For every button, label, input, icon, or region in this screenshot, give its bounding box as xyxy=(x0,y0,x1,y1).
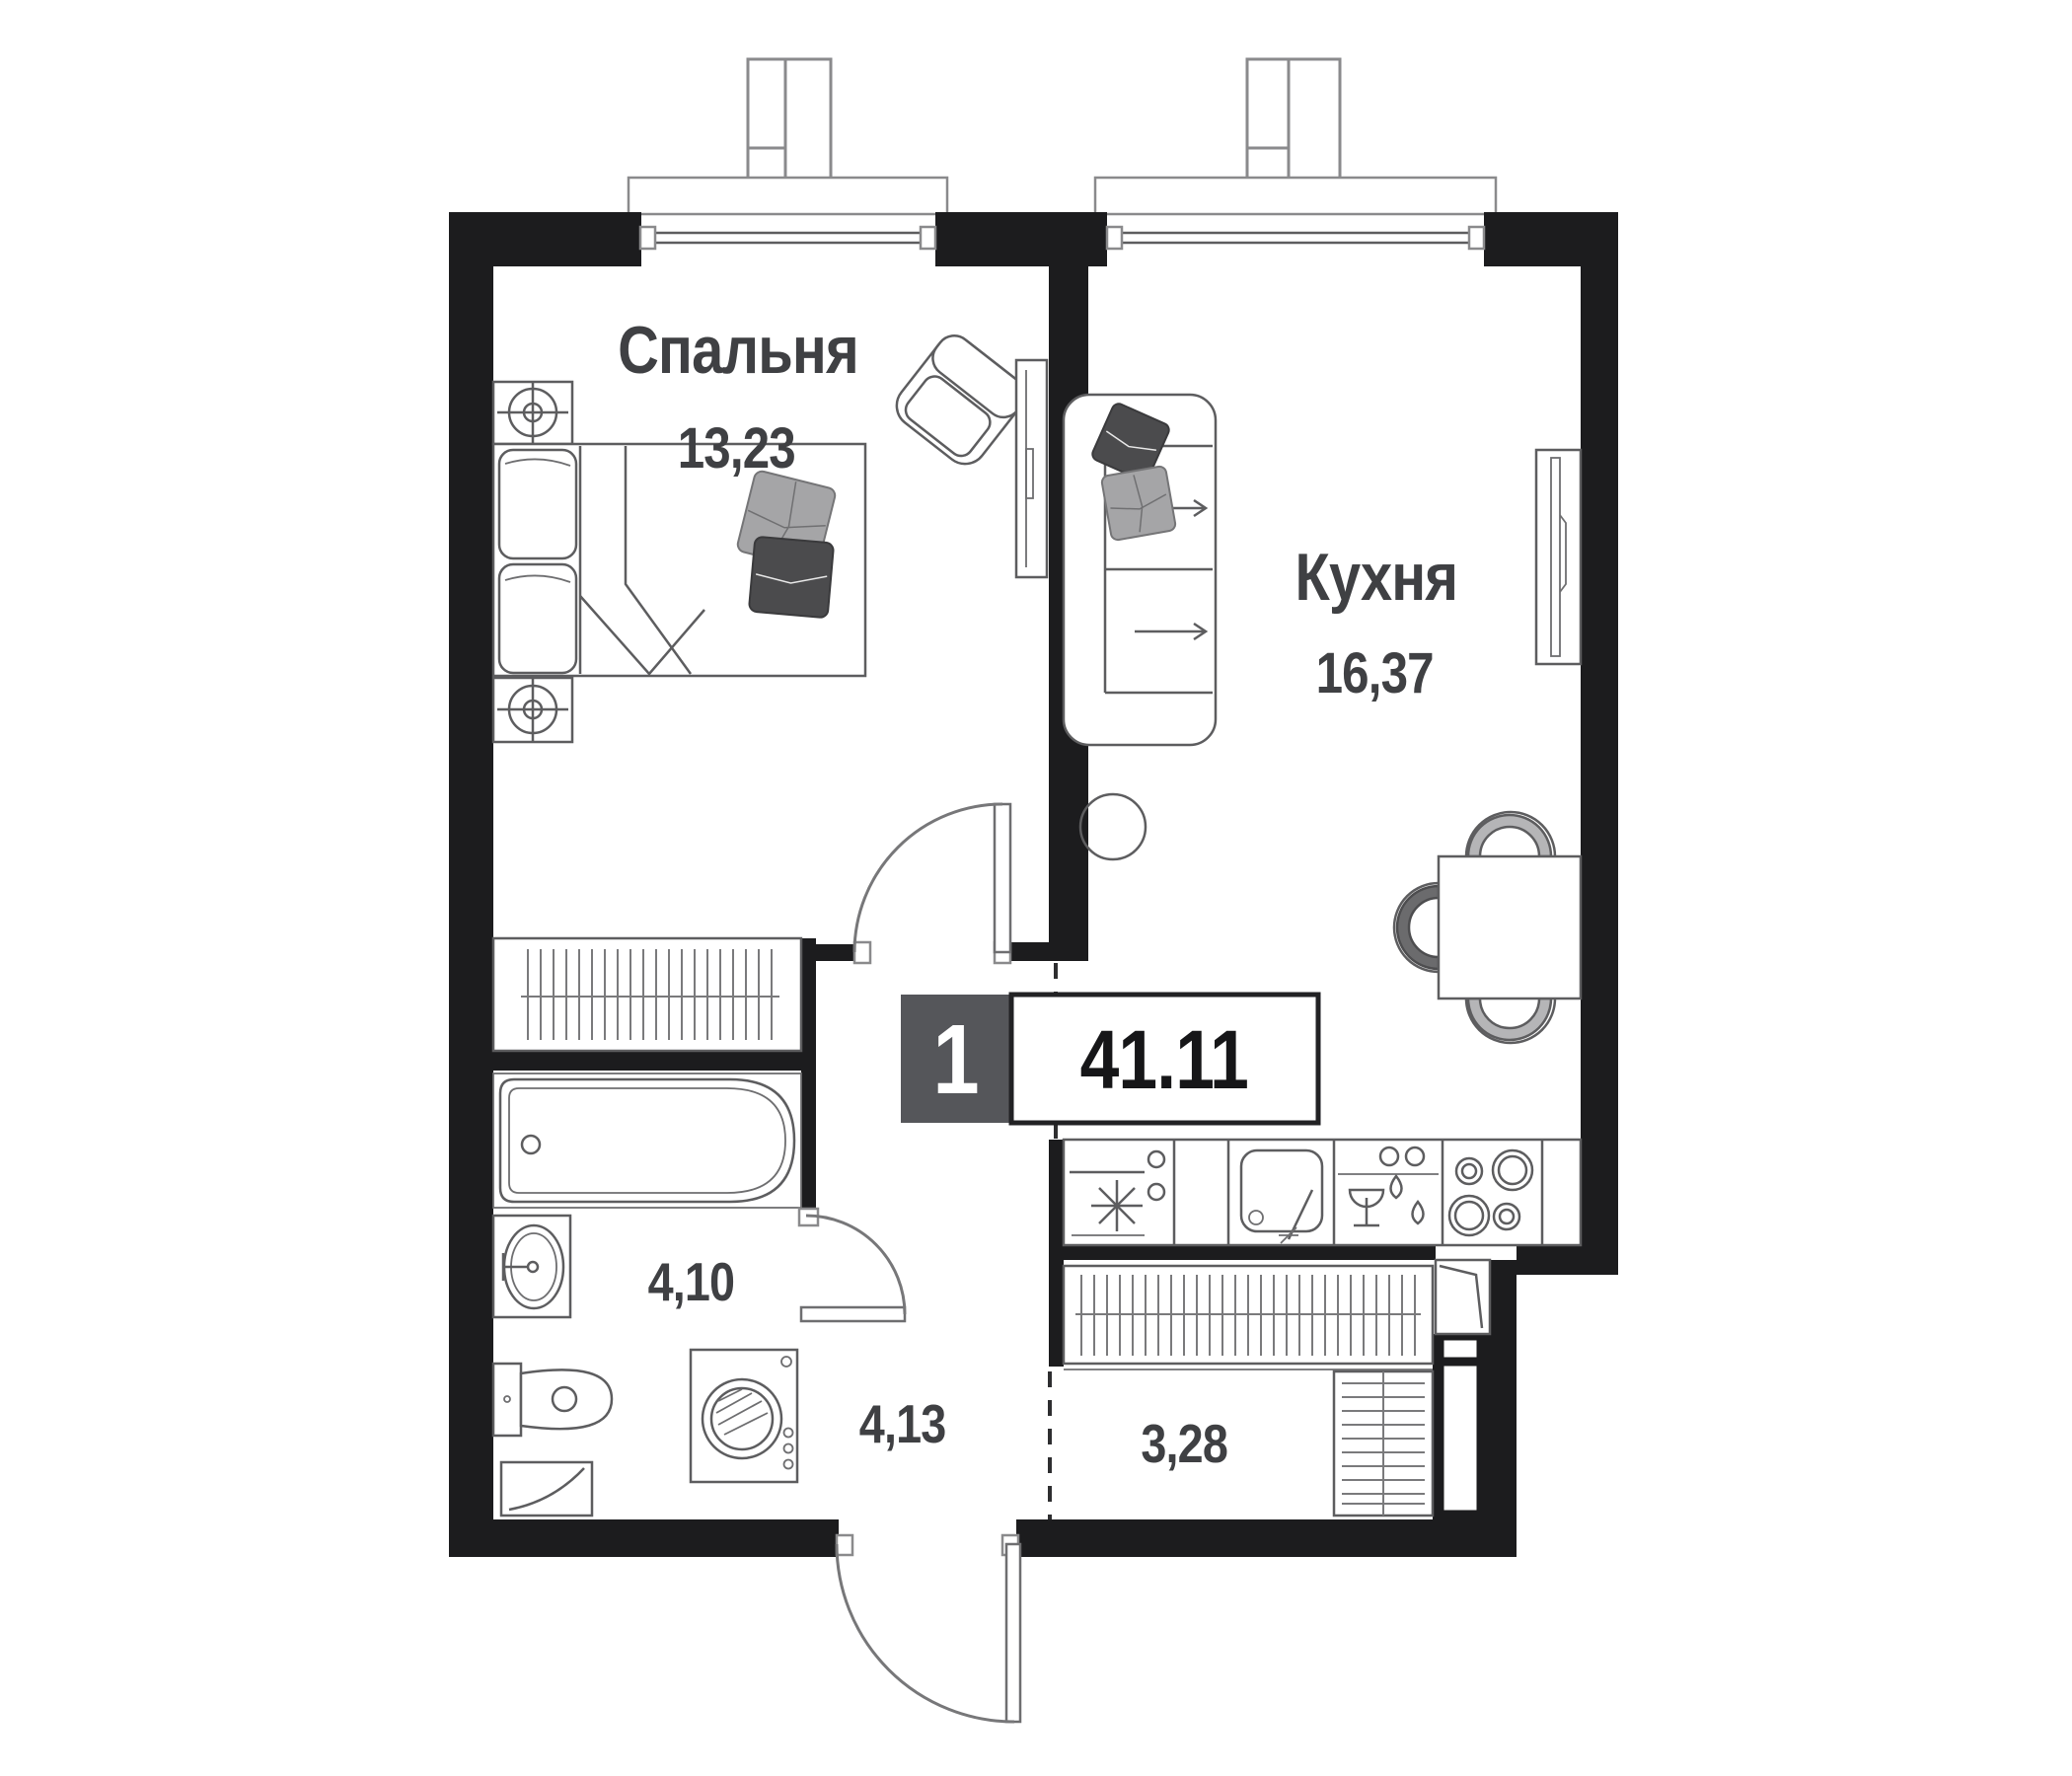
closet-shelves xyxy=(1334,1371,1433,1516)
bathroom-sink xyxy=(493,1216,570,1317)
toilet xyxy=(493,1364,612,1436)
entry-door xyxy=(837,1535,1020,1722)
bathroom-area: 4,10 xyxy=(648,1251,735,1311)
closet-panel-slots xyxy=(1443,1339,1478,1512)
bedroom-tv-panel xyxy=(1016,360,1047,577)
coat-rack xyxy=(1064,1266,1433,1369)
bedroom-window-sill xyxy=(629,178,947,214)
bedroom-area: 13,23 xyxy=(678,416,795,481)
sofa-pillow-light xyxy=(1101,466,1176,541)
bath-mat xyxy=(501,1462,592,1516)
nightstand-bottom xyxy=(493,678,572,743)
room-count-label: 1 xyxy=(932,1003,979,1114)
kitchen-label: Кухня xyxy=(1295,541,1458,615)
floorplan-canvas: 1 41.11 Спальня 13,23 Кухня 16,37 4,10 4… xyxy=(0,0,2072,1776)
bathtub xyxy=(493,1073,801,1208)
bedroom-label: Спальня xyxy=(618,314,858,388)
summary-badge: 1 41.11 xyxy=(901,995,1318,1123)
kitchen-area: 16,37 xyxy=(1316,641,1434,705)
kitchen-window-sill xyxy=(1095,178,1496,214)
washing-machine xyxy=(691,1350,797,1482)
kitchen-tv-panel xyxy=(1536,450,1581,664)
kitchen-window xyxy=(1107,227,1484,249)
armchair xyxy=(888,329,1032,473)
pendant-light xyxy=(1080,794,1146,859)
hallway-area: 4,13 xyxy=(859,1393,946,1453)
closet-area: 3,28 xyxy=(1141,1413,1227,1473)
bedroom-door xyxy=(854,804,1010,963)
corner-cabinet xyxy=(1436,1260,1490,1334)
kitchen-counter xyxy=(1064,1140,1581,1245)
bedroom-wardrobe xyxy=(493,938,801,1051)
nightstand-top xyxy=(493,381,572,446)
bedroom-window xyxy=(640,227,935,249)
bathroom-door xyxy=(799,1209,905,1321)
dining-table xyxy=(1394,812,1581,1043)
bed-pillow-dark xyxy=(749,537,834,619)
total-area-label: 41.11 xyxy=(1080,1012,1248,1106)
